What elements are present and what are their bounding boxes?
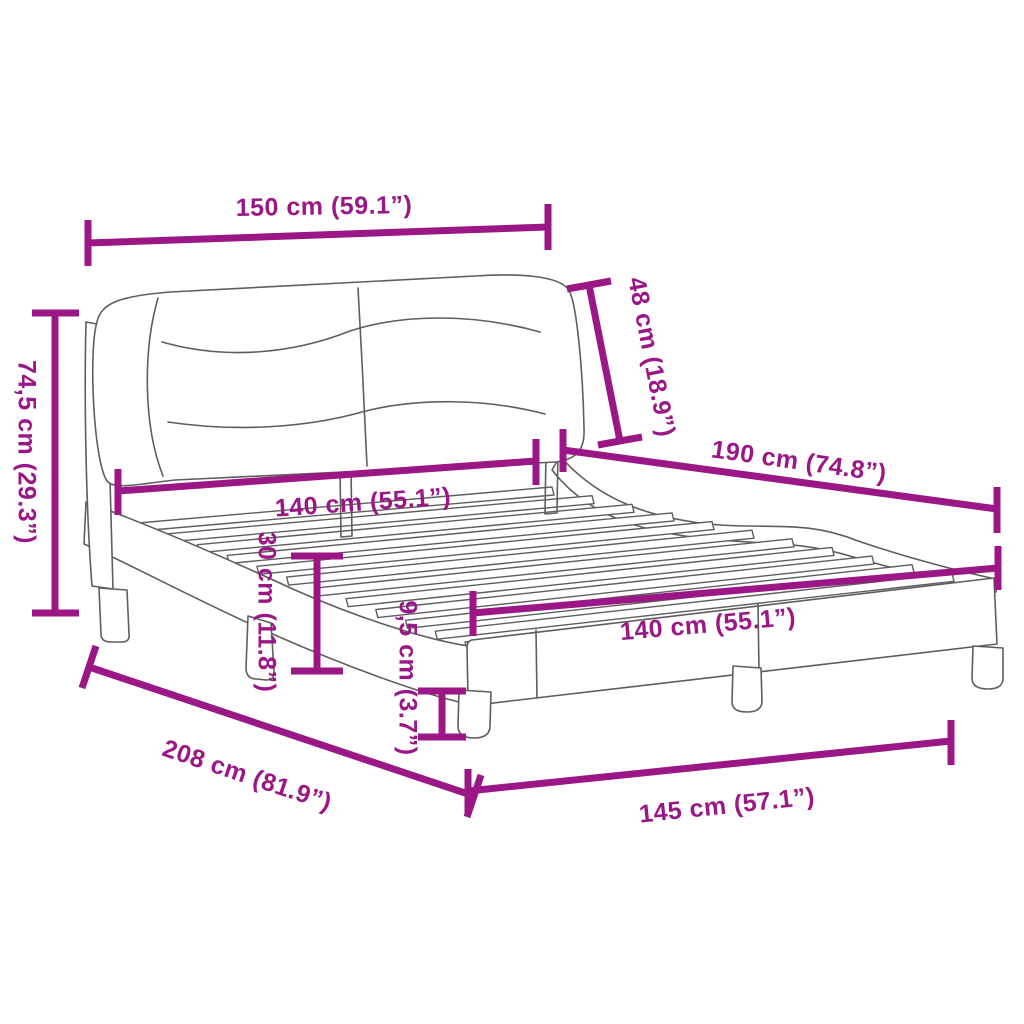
bed-line-art (0, 0, 1024, 1024)
foot-center-leg (732, 666, 762, 712)
bed-drawing (84, 275, 1003, 738)
dim-150-label: 150 cm (59.1”) (235, 191, 412, 223)
dim-30-label: 30 cm (11.8”) (252, 532, 281, 693)
dimension-diagram: 150 cm (59.1”) 74,5 cm (29.3”) 48 cm (18… (0, 0, 1024, 1024)
dim-95-label: 9,5 cm (3.7”) (393, 600, 422, 755)
dim-74-label: 74,5 cm (29.3”) (12, 360, 41, 544)
headboard-left-leg (99, 588, 129, 642)
headboard-cushion (93, 275, 584, 486)
foot-left-leg (458, 690, 491, 738)
foot-right-leg (972, 646, 1003, 689)
